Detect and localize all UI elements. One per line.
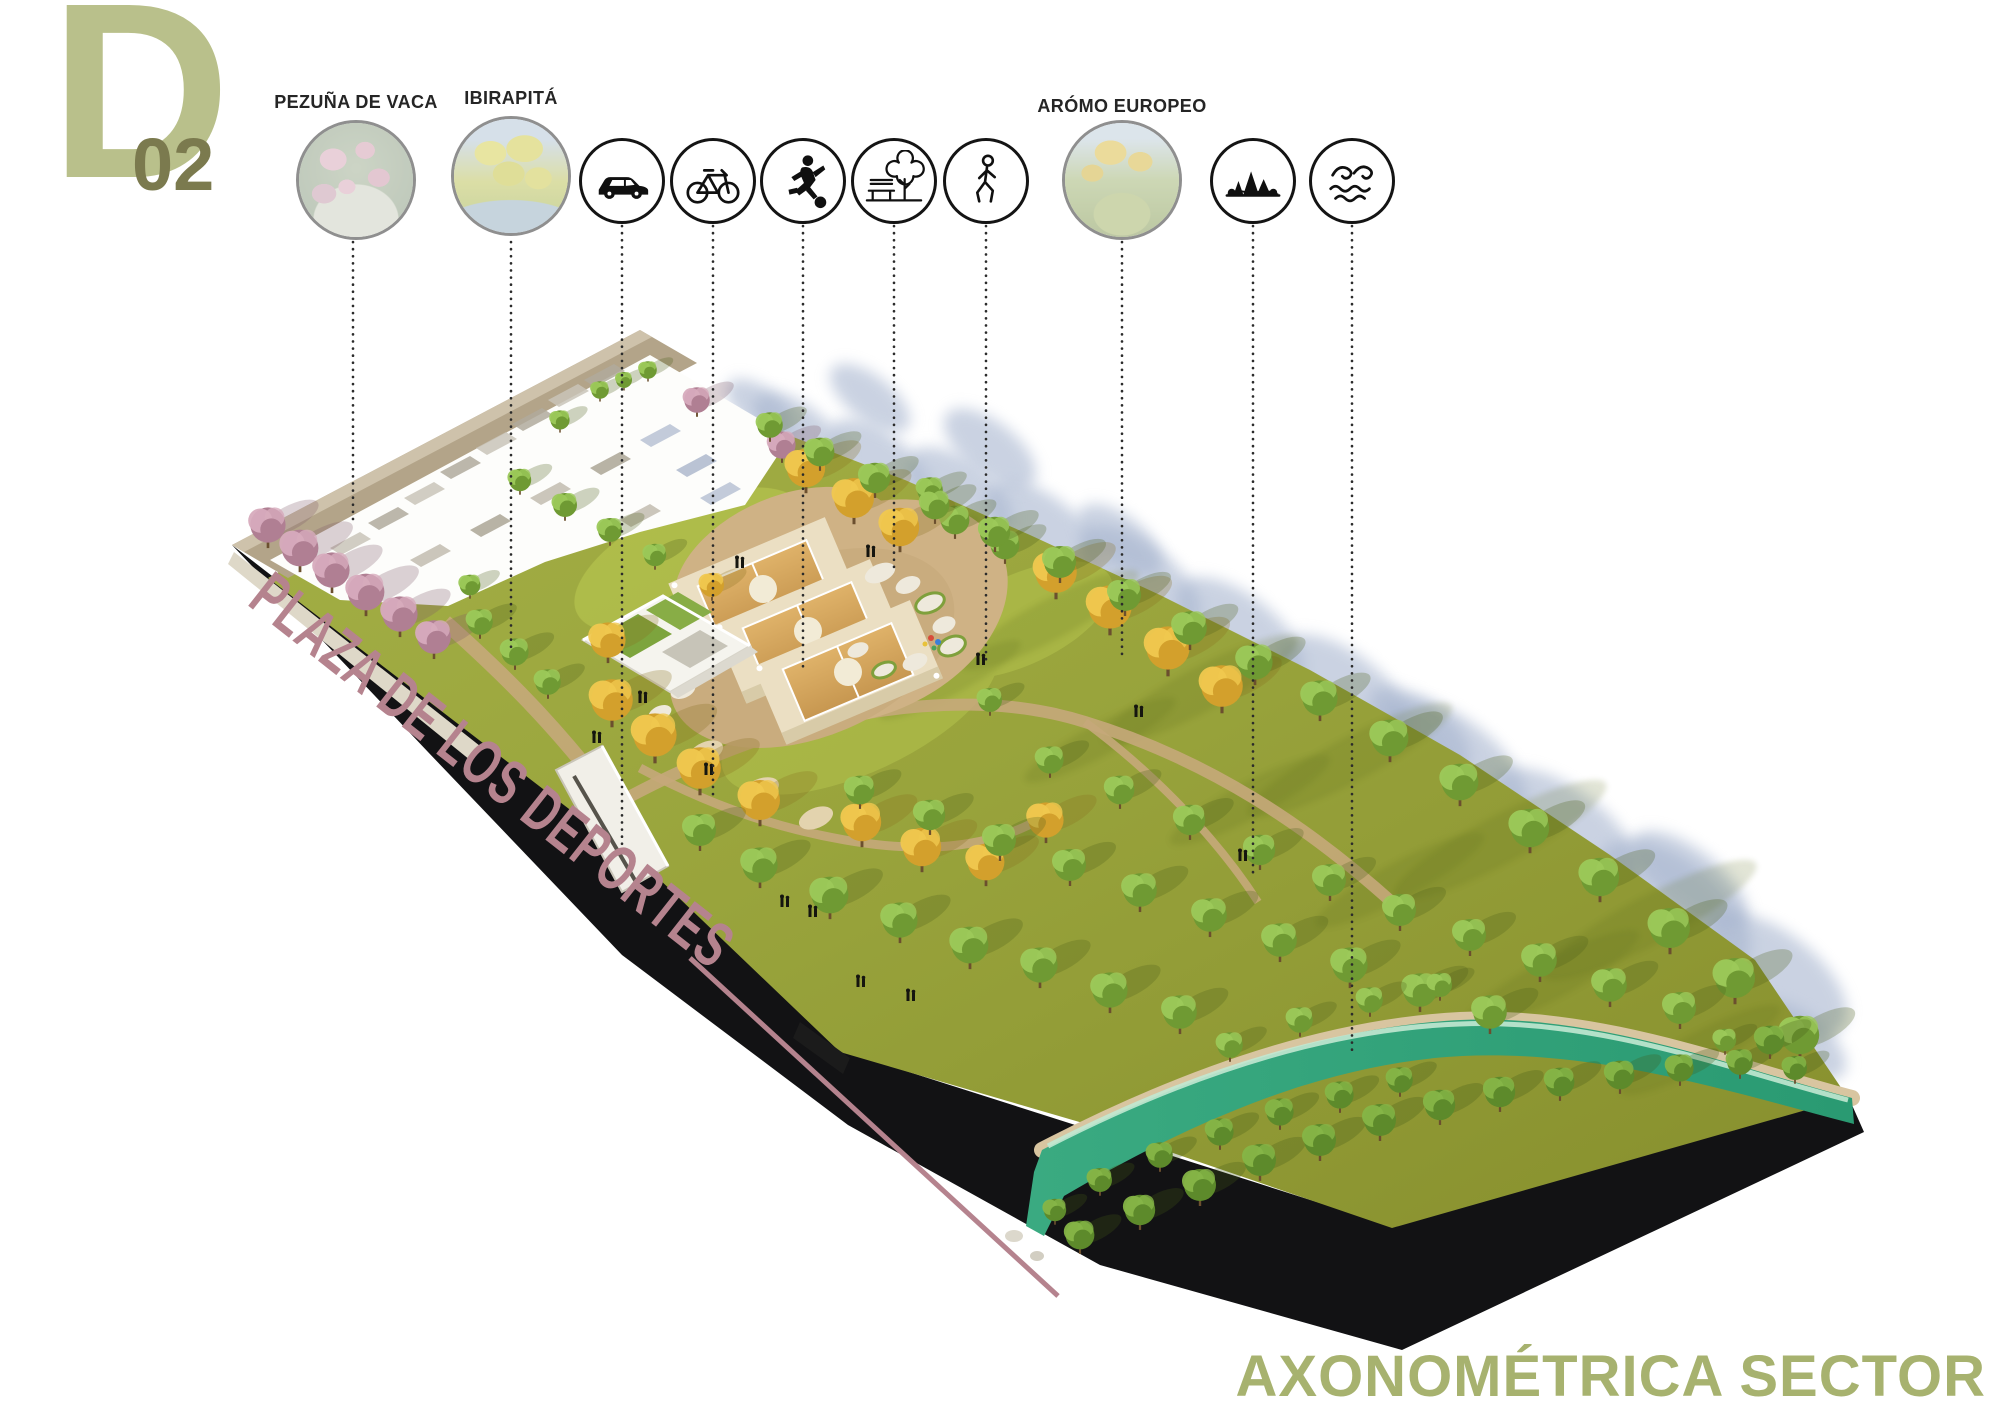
presentation-board: PLAZA DE LOS DEPORTES D 02 PEZUÑA DE VAC… [0,0,2000,1414]
view-title: AXONOMÉTRICA SECTOR [1236,1343,1987,1410]
photo-veil [454,119,568,233]
legend-photo-pezuna-de-vaca[interactable] [296,120,416,240]
sheet-number: 02 [132,128,214,202]
walking-person-icon [955,150,1017,212]
photo-veil [299,123,413,237]
bench-tree-icon [863,150,925,212]
photo-veil [1065,123,1179,237]
legend-icon-soccer[interactable] [760,138,846,224]
soccer-player-icon [772,150,834,212]
water-waves-icon [1321,150,1383,212]
legend-icon-bench[interactable] [851,138,937,224]
car-icon [591,150,653,212]
legend-icon-forest[interactable] [1210,138,1296,224]
bicycle-icon [682,150,744,212]
legend-label-ibirapita: IBIRAPITÁ [391,88,631,109]
legend-photo-aromo-europeo[interactable] [1062,120,1182,240]
legend-photo-ibirapita[interactable] [451,116,571,236]
legend-label-aromo: ARÓMO EUROPEO [1002,96,1242,117]
legend-icon-waves[interactable] [1309,138,1395,224]
legend-icon-bicycle[interactable] [670,138,756,224]
legend-icon-car[interactable] [579,138,665,224]
legend-icon-walking[interactable] [943,138,1029,224]
forest-landscape-icon [1222,150,1284,212]
